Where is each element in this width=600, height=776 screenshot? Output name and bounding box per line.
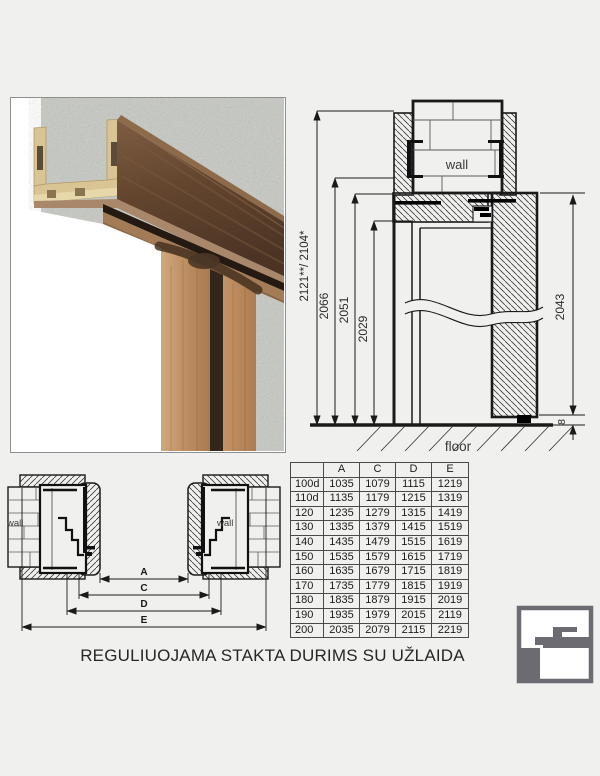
value-cell: 1915 bbox=[396, 594, 432, 609]
value-cell: 1279 bbox=[360, 506, 396, 521]
dim-total: 2121**/ 2104* bbox=[299, 230, 311, 302]
wall-label: wall bbox=[445, 157, 469, 172]
plan-dimension-labels: A C D E bbox=[140, 567, 147, 626]
value-cell: 1815 bbox=[396, 579, 432, 594]
value-cell: 2015 bbox=[396, 608, 432, 623]
row-label-cell: 190 bbox=[291, 608, 324, 623]
table-row: 1601635167917151819 bbox=[291, 565, 469, 580]
value-cell: 1419 bbox=[432, 506, 469, 521]
value-cell: 1215 bbox=[396, 492, 432, 507]
dim-c: C bbox=[140, 583, 147, 594]
value-cell: 1579 bbox=[360, 550, 396, 565]
value-cell: 1935 bbox=[324, 608, 360, 623]
oak-jamb bbox=[159, 246, 258, 451]
value-cell: 2115 bbox=[396, 623, 432, 638]
value-cell: 1619 bbox=[432, 535, 469, 550]
value-cell: 1479 bbox=[360, 535, 396, 550]
value-cell: 1715 bbox=[396, 565, 432, 580]
value-cell: 2119 bbox=[432, 608, 469, 623]
frame-photo bbox=[10, 97, 286, 453]
value-cell: 1535 bbox=[324, 550, 360, 565]
value-cell: 1179 bbox=[360, 492, 396, 507]
value-cell: 1879 bbox=[360, 594, 396, 609]
table-row: 110d1135117912151319 bbox=[291, 492, 469, 507]
channel-slot-left bbox=[37, 146, 43, 170]
value-cell: 1219 bbox=[432, 477, 469, 492]
value-cell: 1235 bbox=[324, 506, 360, 521]
jamb-seal-groove bbox=[210, 269, 223, 451]
floor: floor bbox=[310, 425, 585, 454]
door-leaf-section bbox=[492, 193, 537, 417]
value-cell: 2079 bbox=[360, 623, 396, 638]
floor-label: floor bbox=[445, 439, 472, 454]
value-cell: 1079 bbox=[360, 477, 396, 492]
col-header-c: C bbox=[360, 463, 396, 478]
door-opening bbox=[11, 206, 161, 451]
dim-d: D bbox=[140, 599, 147, 610]
row-label-cell: 110d bbox=[291, 492, 324, 507]
size-table-body: 100d1035107911151219110d1135117912151319… bbox=[291, 477, 469, 638]
dim-floor-gap: 8 bbox=[556, 419, 568, 425]
value-cell: 2219 bbox=[432, 623, 469, 638]
seal-hook bbox=[87, 546, 95, 550]
value-cell: 1635 bbox=[324, 565, 360, 580]
table-row: 1201235127913151419 bbox=[291, 506, 469, 521]
dim-opening: 2029 bbox=[356, 315, 370, 342]
value-cell: 1435 bbox=[324, 535, 360, 550]
table-row: 1501535157916151719 bbox=[291, 550, 469, 565]
row-label-cell: 120 bbox=[291, 506, 324, 521]
dim-frame-inner: 2051 bbox=[337, 296, 351, 323]
value-cell: 1979 bbox=[360, 608, 396, 623]
value-cell: 1719 bbox=[432, 550, 469, 565]
table-header-row: A C D E bbox=[291, 463, 469, 478]
value-cell: 1615 bbox=[396, 550, 432, 565]
vertical-section-drawing: wall bbox=[295, 95, 600, 470]
col-header-d: D bbox=[396, 463, 432, 478]
value-cell: 1519 bbox=[432, 521, 469, 536]
frame-photo-graphic bbox=[11, 98, 284, 451]
row-label-cell: 180 bbox=[291, 594, 324, 609]
wall-label-right: wall bbox=[216, 518, 233, 529]
channel-slot-right bbox=[111, 142, 117, 166]
table-row: 100d1035107911151219 bbox=[291, 477, 469, 492]
row-label-cell: 140 bbox=[291, 535, 324, 550]
table-row: 1301335137914151519 bbox=[291, 521, 469, 536]
value-cell: 1415 bbox=[396, 521, 432, 536]
channel-notch bbox=[47, 190, 56, 198]
col-header-e: E bbox=[432, 463, 469, 478]
value-cell: 1115 bbox=[396, 477, 432, 492]
table-row: 1801835187919152019 bbox=[291, 594, 469, 609]
col-header-blank bbox=[291, 463, 324, 478]
table-row: 2002035207921152219 bbox=[291, 623, 469, 638]
row-label-cell: 100d bbox=[291, 477, 324, 492]
value-cell: 1319 bbox=[432, 492, 469, 507]
value-cell: 1335 bbox=[324, 521, 360, 536]
seal-hook bbox=[87, 552, 92, 556]
catalog-sheet: wall bbox=[0, 0, 600, 776]
value-cell: 1819 bbox=[432, 565, 469, 580]
wall-label-left: wall bbox=[6, 518, 23, 529]
dim-leaf: 2043 bbox=[553, 293, 567, 320]
plan-section-drawing: wall wall A C D E bbox=[0, 460, 295, 650]
value-cell: 1315 bbox=[396, 506, 432, 521]
value-cell: 1515 bbox=[396, 535, 432, 550]
brand-logo bbox=[514, 603, 596, 687]
dim-e: E bbox=[141, 615, 148, 626]
dim-frame-outer: 2066 bbox=[317, 292, 331, 319]
size-table: A C D E 100d1035107911151219110d11351179… bbox=[290, 462, 469, 638]
table-row: 1901935197920152119 bbox=[291, 608, 469, 623]
value-cell: 1779 bbox=[360, 579, 396, 594]
dim-a: A bbox=[140, 567, 147, 578]
page-title: REGULIUOJAMA STAKTA DURIMS SU UŽLAIDA bbox=[0, 646, 545, 666]
table-row: 1701735177918151919 bbox=[291, 579, 469, 594]
row-label-cell: 150 bbox=[291, 550, 324, 565]
row-label-cell: 160 bbox=[291, 565, 324, 580]
channel-notch bbox=[75, 188, 85, 196]
value-cell: 1679 bbox=[360, 565, 396, 580]
value-cell: 1735 bbox=[324, 579, 360, 594]
value-cell: 1135 bbox=[324, 492, 360, 507]
value-cell: 1379 bbox=[360, 521, 396, 536]
value-cell: 1919 bbox=[432, 579, 469, 594]
wall-block: wall bbox=[413, 101, 502, 193]
leaf-bottom-seal bbox=[517, 415, 531, 423]
col-header-a: A bbox=[324, 463, 360, 478]
row-label-cell: 200 bbox=[291, 623, 324, 638]
value-cell: 2035 bbox=[324, 623, 360, 638]
row-label-cell: 130 bbox=[291, 521, 324, 536]
value-cell: 1035 bbox=[324, 477, 360, 492]
value-cell: 2019 bbox=[432, 594, 469, 609]
table-row: 1401435147915151619 bbox=[291, 535, 469, 550]
value-cell: 1835 bbox=[324, 594, 360, 609]
row-label-cell: 170 bbox=[291, 579, 324, 594]
